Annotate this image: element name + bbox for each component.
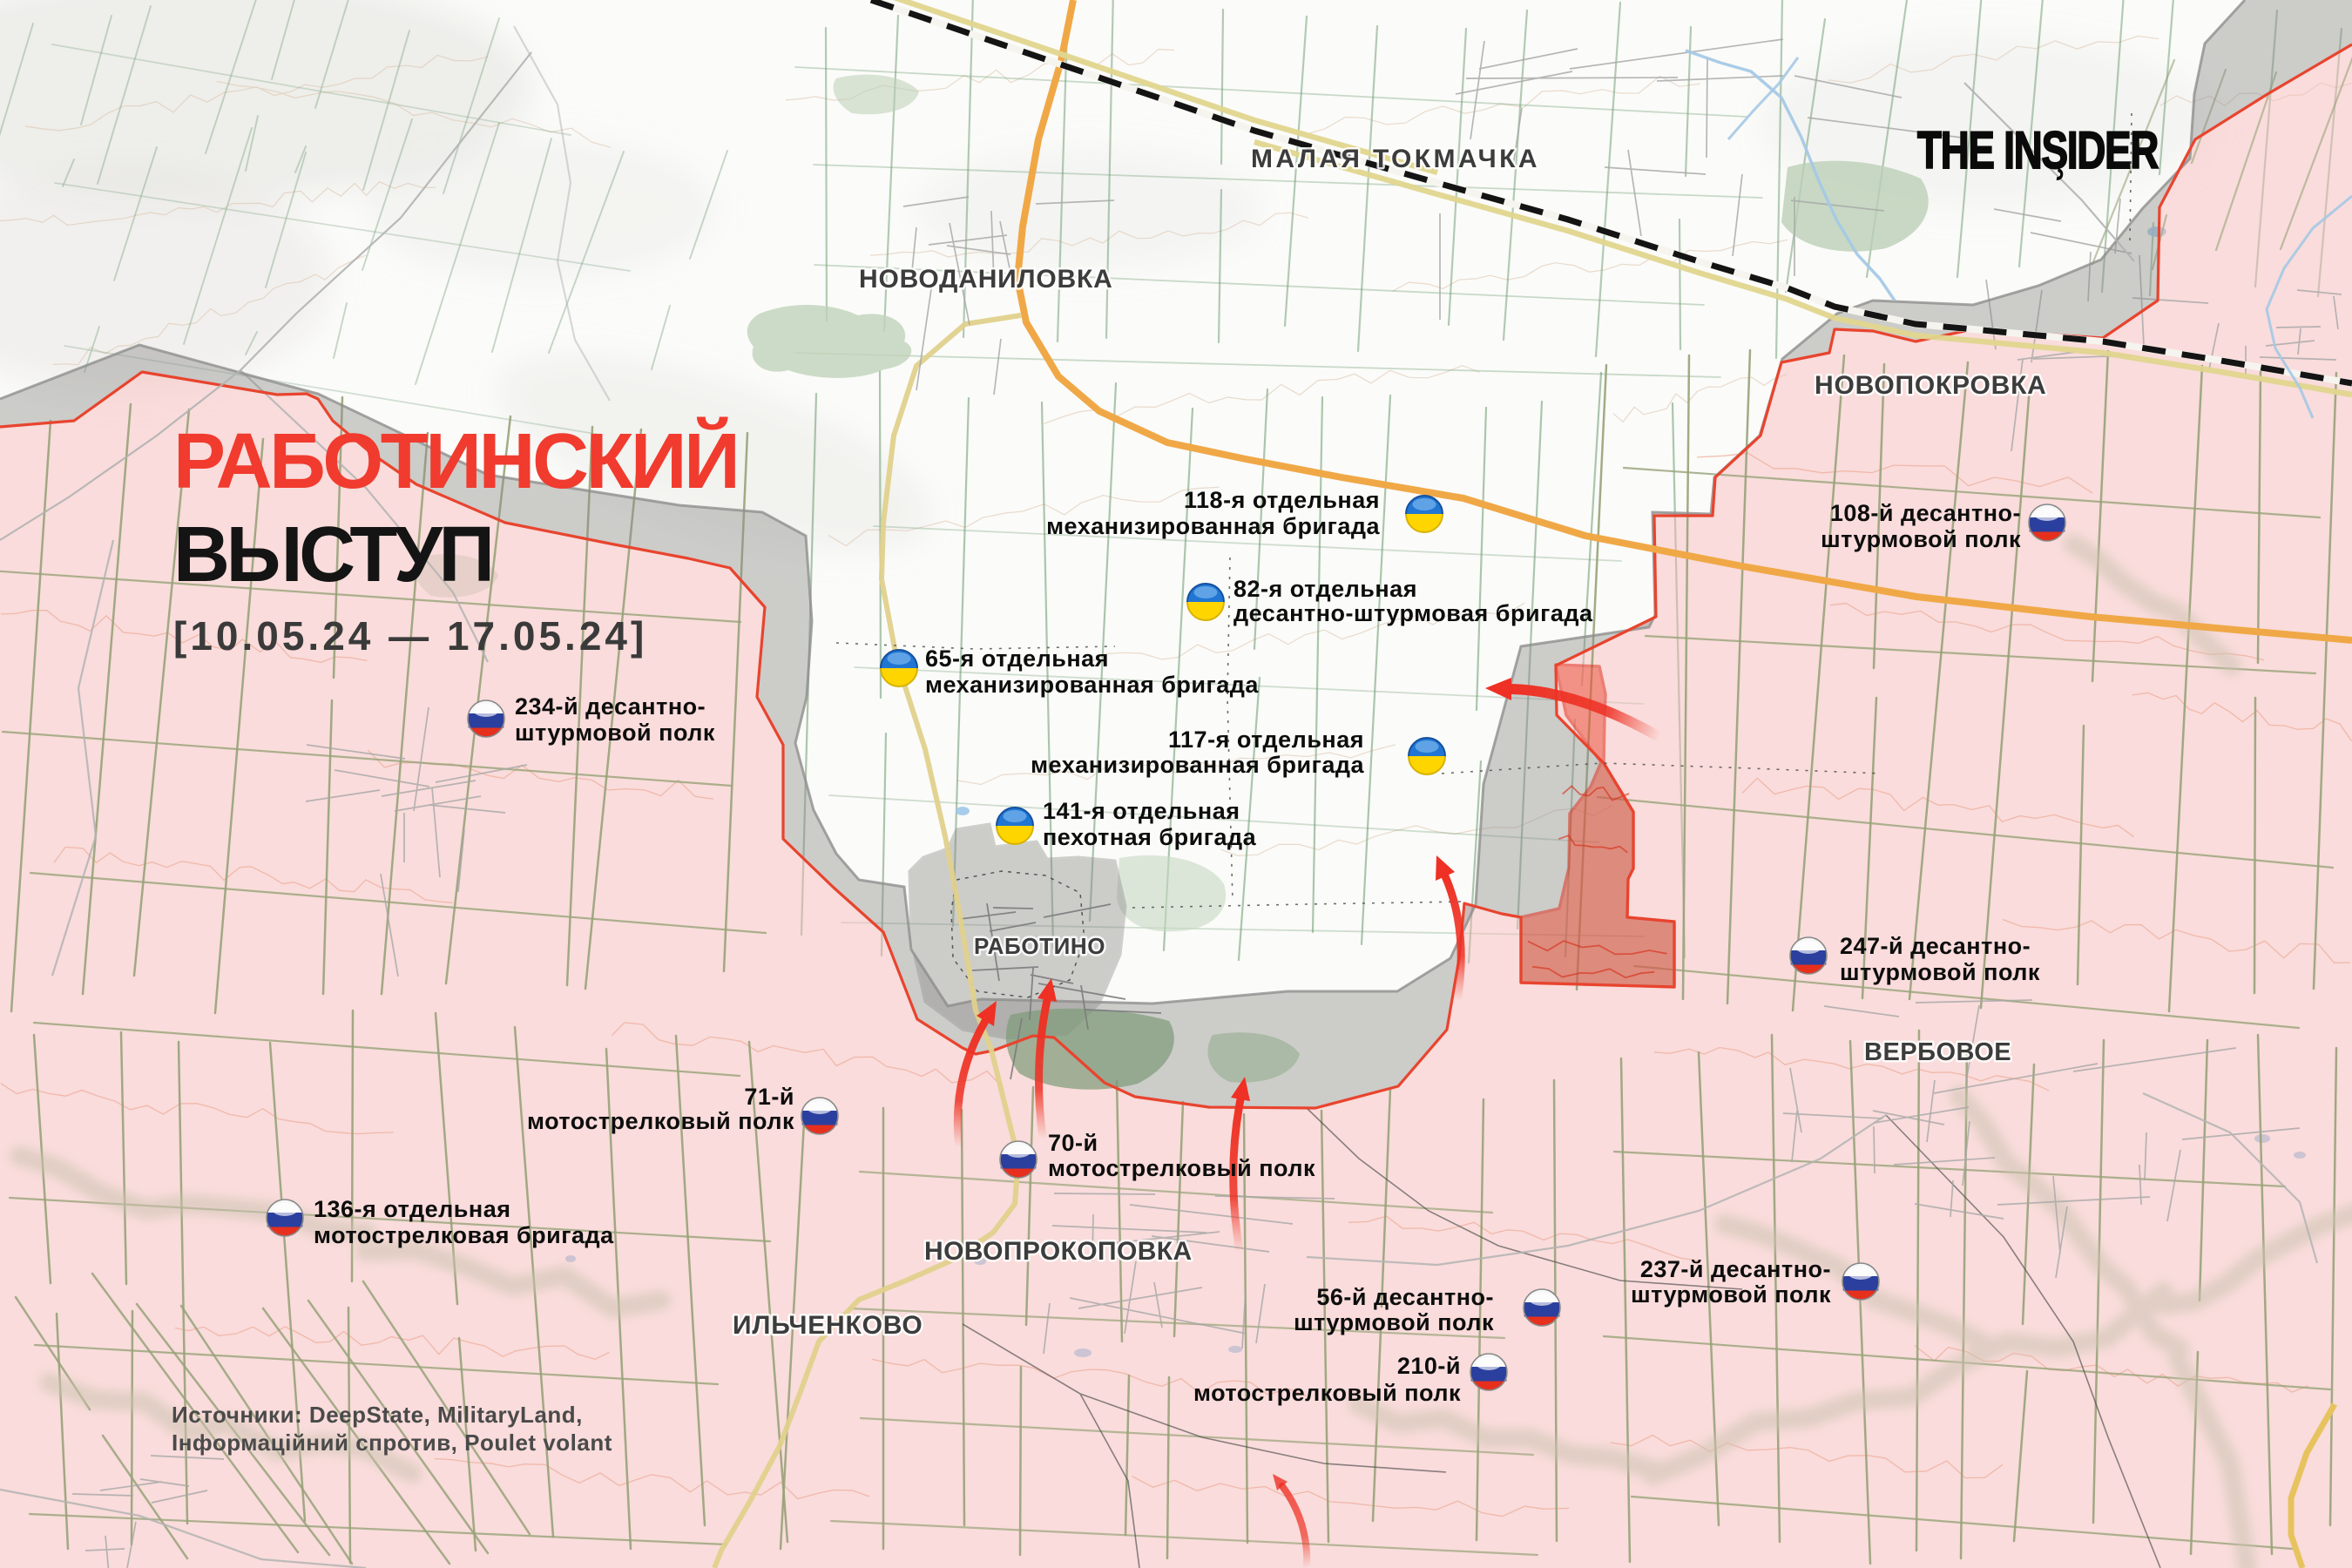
svg-text:ИЛЬЧЕНКОВО: ИЛЬЧЕНКОВО bbox=[733, 1311, 923, 1340]
svg-text:237-й десантно-: 237-й десантно- bbox=[1640, 1256, 1831, 1282]
svg-text:штурмовой полк: штурмовой полк bbox=[1294, 1309, 1494, 1335]
svg-text:Інформаційний спротив, Poulet: Інформаційний спротив, Poulet volant bbox=[172, 1429, 612, 1456]
svg-text:118-я отдельная: 118-я отдельная bbox=[1184, 487, 1380, 513]
svg-text:штурмовой полк: штурмовой полк bbox=[1631, 1281, 1831, 1308]
svg-text:141-я отдельная: 141-я отдельная bbox=[1043, 798, 1240, 824]
svg-text:мотострелковый полк: мотострелковый полк bbox=[1193, 1380, 1461, 1406]
svg-text:штурмовой полк: штурмовой полк bbox=[1821, 526, 2021, 552]
svg-text:мотострелковый полк: мотострелковый полк bbox=[527, 1108, 794, 1134]
svg-text:210-й: 210-й bbox=[1397, 1353, 1461, 1379]
svg-text:56-й десантно-: 56-й десантно- bbox=[1316, 1284, 1494, 1310]
svg-text:пехотная бригада: пехотная бригада bbox=[1043, 824, 1257, 850]
svg-text:НОВОПОКРОВКА: НОВОПОКРОВКА bbox=[1815, 371, 2047, 400]
svg-text:МАЛАЯ ТОКМАЧКА: МАЛАЯ ТОКМАЧКА bbox=[1251, 145, 1540, 173]
svg-text:мотострелковый полк: мотострелковый полк bbox=[1048, 1155, 1315, 1181]
svg-text:РАБОТИНО: РАБОТИНО bbox=[974, 933, 1105, 959]
svg-text:РАБОТИНСКИЙ: РАБОТИНСКИЙ bbox=[173, 416, 737, 505]
svg-text:108-й десантно-: 108-й десантно- bbox=[1830, 500, 2021, 526]
svg-text:136-я отдельная: 136-я отдельная bbox=[314, 1196, 510, 1222]
svg-text:[10.05.24 — 17.05.24]: [10.05.24 — 17.05.24] bbox=[173, 613, 647, 659]
svg-text:82-я отдельная: 82-я отдельная bbox=[1233, 576, 1417, 602]
svg-text:НОВОПРОКОПОВКА: НОВОПРОКОПОВКА bbox=[924, 1237, 1193, 1266]
svg-text:THE INSIDER: THE INSIDER bbox=[1917, 122, 2159, 179]
svg-text:механизированная бригада: механизированная бригада bbox=[1046, 513, 1380, 539]
svg-text:десантно-штурмовая бригада: десантно-штурмовая бригада bbox=[1233, 600, 1593, 626]
svg-text:механизированная бригада: механизированная бригада bbox=[1031, 752, 1364, 778]
svg-text:247-й десантно-: 247-й десантно- bbox=[1840, 933, 2031, 959]
svg-text:штурмовой полк: штурмовой полк bbox=[515, 720, 715, 746]
svg-text:ВЫСТУП: ВЫСТУП bbox=[173, 511, 491, 598]
svg-text:НОВОДАНИЛОВКА: НОВОДАНИЛОВКА bbox=[859, 265, 1113, 294]
svg-text:мотострелковая бригада: мотострелковая бригада bbox=[314, 1222, 614, 1248]
svg-text:117-я отдельная: 117-я отдельная bbox=[1168, 727, 1364, 753]
svg-text:Источники: DeepState, Military: Источники: DeepState, MilitaryLand, bbox=[172, 1402, 583, 1428]
svg-text:65-я отдельная: 65-я отдельная bbox=[925, 645, 1109, 672]
svg-text:70-й: 70-й bbox=[1048, 1130, 1098, 1156]
svg-text:234-й десантно-: 234-й десантно- bbox=[515, 693, 706, 720]
svg-text:71-й: 71-й bbox=[744, 1084, 794, 1110]
svg-text:штурмовой полк: штурмовой полк bbox=[1840, 959, 2040, 985]
svg-text:ВЕРБОВОЕ: ВЕРБОВОЕ bbox=[1864, 1038, 2011, 1066]
svg-text:механизированная бригада: механизированная бригада bbox=[925, 672, 1259, 698]
